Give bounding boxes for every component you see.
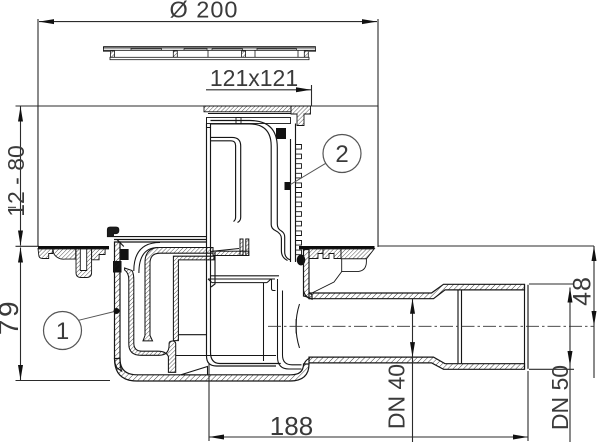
svg-text:DN 50: DN 50 [547, 365, 573, 430]
svg-text:48: 48 [569, 276, 597, 306]
svg-text:1: 1 [56, 318, 69, 345]
svg-text:2: 2 [335, 141, 348, 168]
svg-text:79: 79 [0, 299, 24, 335]
svg-text:12 - 80: 12 - 80 [3, 145, 29, 217]
svg-text:DN 40: DN 40 [384, 364, 410, 429]
svg-text:Ø 200: Ø 200 [169, 0, 238, 23]
svg-text:188: 188 [270, 411, 313, 441]
svg-text:121x121: 121x121 [210, 65, 298, 91]
